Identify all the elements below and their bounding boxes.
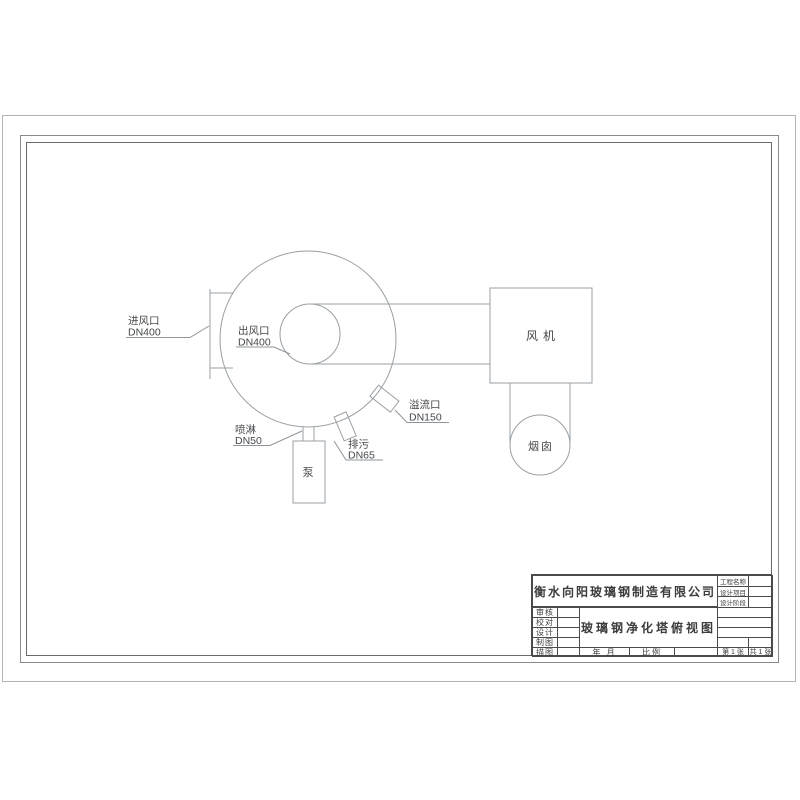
tracing-label: 描图 <box>532 647 558 657</box>
inlet-dn-label: DN400 <box>128 327 161 339</box>
company-name-cell: 衡水向阳玻璃钢制造有限公司 <box>532 575 718 607</box>
pump-label: 泵 <box>303 466 316 479</box>
fan-label: 风机 <box>526 329 560 343</box>
drain-dn-label: DN65 <box>348 450 375 462</box>
date-cell: 年 月 <box>579 647 630 657</box>
outlet-label: 出风口 <box>238 324 270 337</box>
title-block: 衡水向阳玻璃钢制造有限公司 工程名称 设计项目 设计阶段 审核 校对 设计 制图… <box>531 574 772 656</box>
inlet-label: 进风口 <box>128 315 160 327</box>
scale-value-cell <box>674 647 718 657</box>
tracing-value <box>557 647 580 657</box>
outlet-circle <box>280 304 340 364</box>
overflow-stub <box>370 385 399 412</box>
overflow-dn-label: DN150 <box>409 412 442 424</box>
overflow-label: 溢流口 <box>409 398 441 411</box>
drawing-canvas: 风机 烟囱 泵 进风口 DN400 出风口 DN400 喷淋 DN50 排污 D… <box>0 0 800 800</box>
sheet-total-cell: 共 1 张 <box>748 647 773 657</box>
spray-dn-label: DN50 <box>235 435 262 447</box>
sheet-number-cell: 第 1 张 <box>717 647 749 657</box>
drain-stub <box>334 412 356 441</box>
drawing-title-cell: 玻璃钢净化塔俯视图 <box>579 607 718 648</box>
chimney-label: 烟囱 <box>528 439 554 453</box>
scanned-drawing-sheet: 风机 烟囱 泵 进风口 DN400 出风口 DN400 喷淋 DN50 排污 D… <box>0 0 800 800</box>
scale-cell: 比例 <box>629 647 675 657</box>
outlet-dn-label: DN400 <box>238 337 271 349</box>
